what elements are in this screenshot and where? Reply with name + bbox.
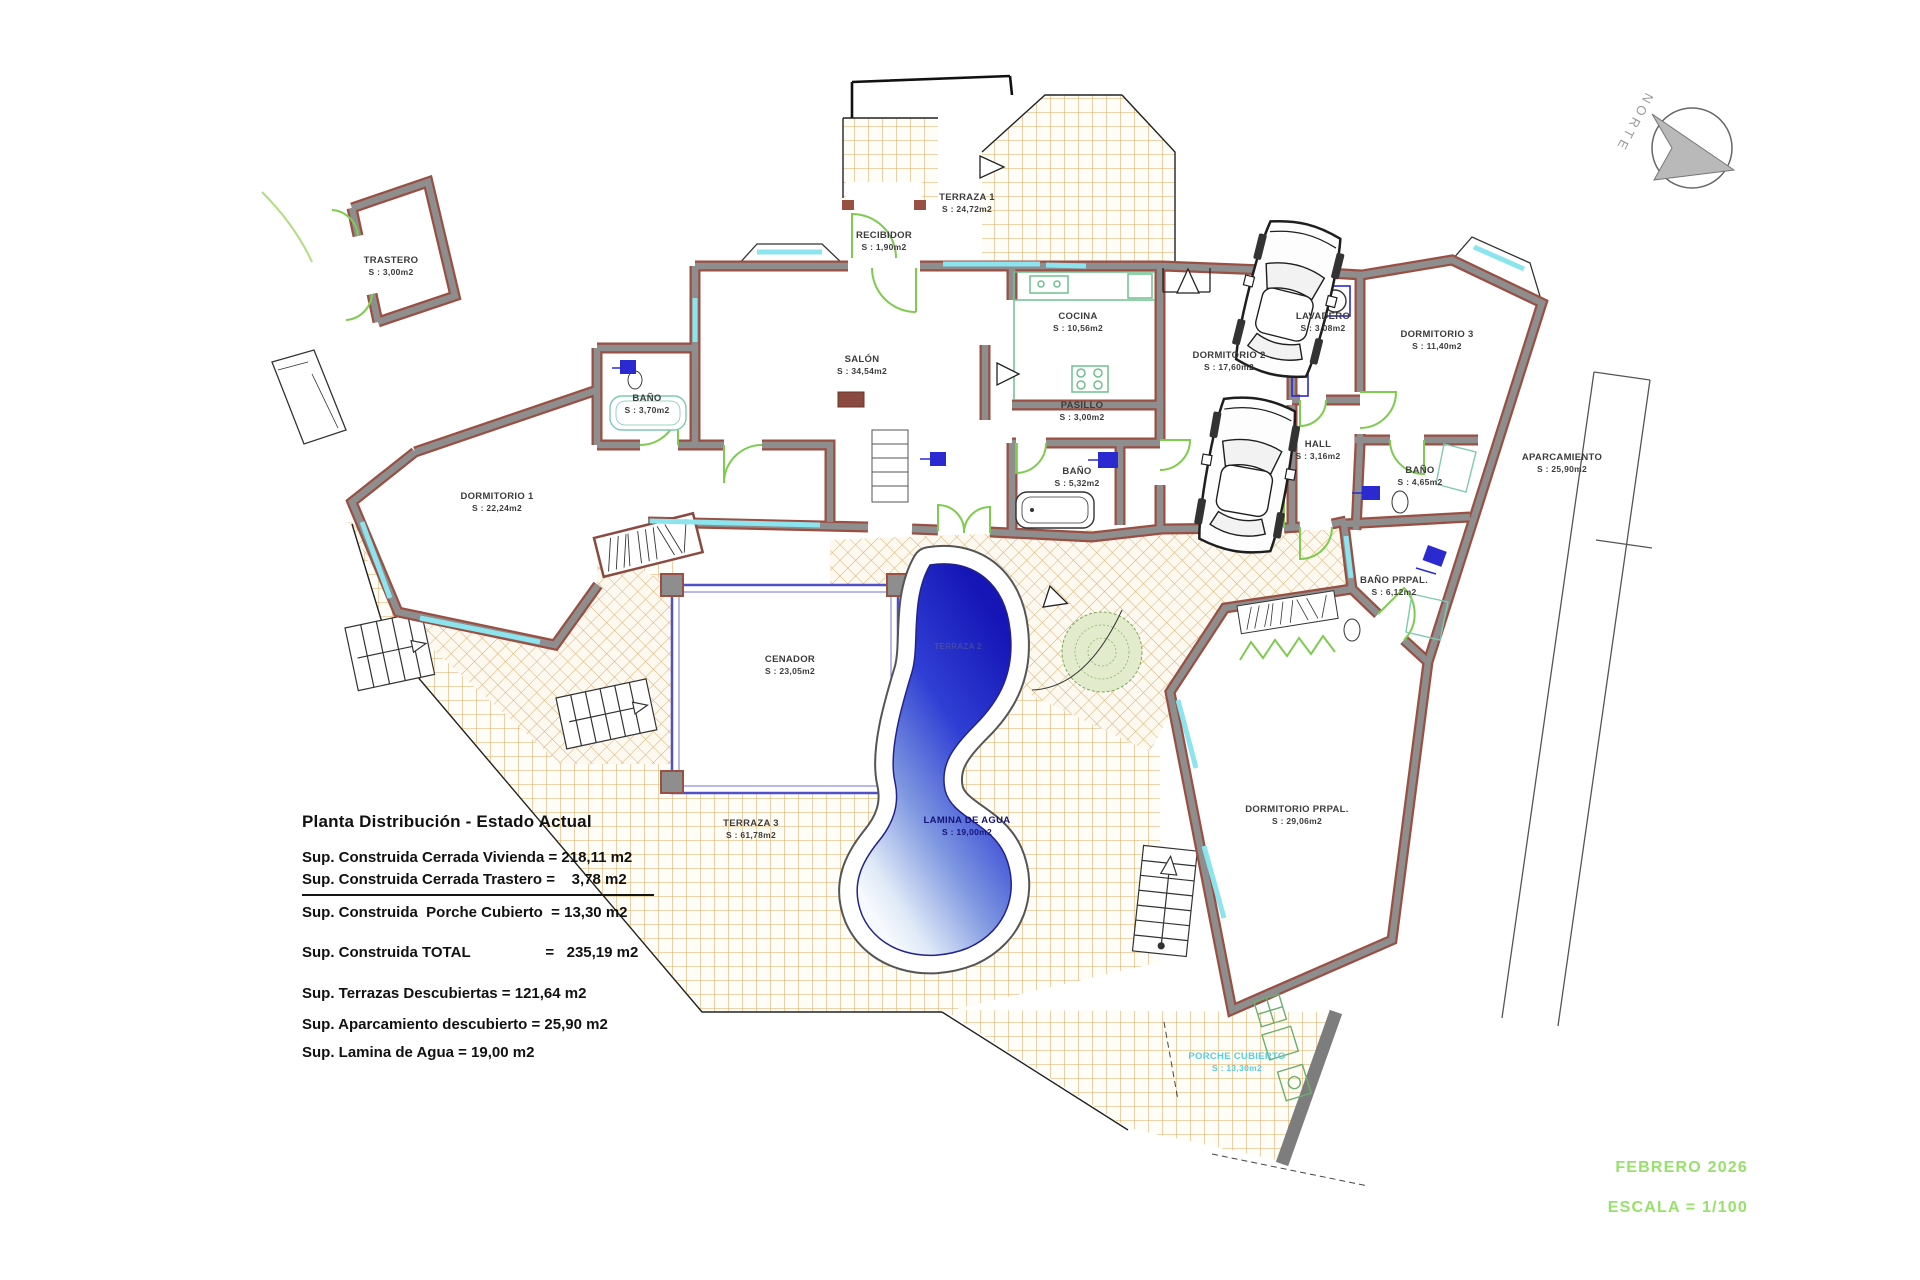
room-name: HALL [1305,439,1332,450]
room-labels-layer: TRASTEROS : 3,00m2TERRAZA 1S : 24,72m2RE… [0,0,1920,1280]
summary-line-terrazas: Sup. Terrazas Descubiertas = 121,64 m2 [302,984,672,1004]
room-label-lavadero: LAVADEROS : 3,08m2 [1296,311,1350,334]
room-area: S : 3,00m2 [1059,412,1104,423]
floor-plan-page: NORTE TRASTEROS : 3,00m2TERRAZA 1S : 24,… [0,0,1920,1280]
room-area: S : 19,00m2 [924,827,1011,838]
room-name: PASILLO [1061,400,1104,411]
summary-line-aparcamiento: Sup. Aparcamiento descubierto = 25,90 m2 [302,1015,672,1035]
room-label-dormitorio-prpal: DORMITORIO PRPAL.S : 29,06m2 [1245,804,1348,827]
room-area: S : 3,00m2 [364,267,419,278]
room-label-bano-prpal: BAÑO PRPAL.S : 6,12m2 [1360,575,1428,598]
summary-line-porche: Sup. Construida Porche Cubierto = 13,30 … [302,903,672,923]
room-name: PORCHE CUBIERTO [1188,1051,1285,1062]
room-label-recibidor: RECIBIDORS : 1,90m2 [856,230,912,253]
room-area: S : 34,54m2 [837,366,887,377]
room-area: S : 13,30m2 [1188,1063,1285,1074]
room-area: S : 4,65m2 [1397,477,1442,488]
room-label-bano-2: BAÑOS : 5,32m2 [1054,466,1099,489]
room-label-bano-3: BAÑOS : 4,65m2 [1397,465,1442,488]
room-area: S : 3,16m2 [1295,451,1340,462]
room-label-lamina-de-agua: LAMINA DE AGUAS : 19,00m2 [924,815,1011,838]
room-name: TRASTERO [364,255,419,266]
room-name: BAÑO [1405,465,1434,476]
room-name: TERRAZA 2 [934,642,981,651]
room-label-dormitorio-1: DORMITORIO 1S : 22,24m2 [460,491,533,514]
room-name: DORMITORIO 1 [460,491,533,502]
room-name: LAVADERO [1296,311,1350,322]
summary-line-vivienda: Sup. Construida Cerrada Vivienda = 218,1… [302,848,672,868]
room-label-dormitorio-2: DORMITORIO 2S : 17,60m2 [1192,350,1265,373]
plan-title: Planta Distribución - Estado Actual [302,812,672,832]
room-name: TERRAZA 3 [723,818,779,829]
summary-block: Planta Distribución - Estado Actual Sup.… [302,812,672,1063]
room-area: S : 23,05m2 [765,666,815,677]
room-area: S : 22,24m2 [460,503,533,514]
room-area: S : 61,78m2 [723,830,779,841]
room-label-cenador: CENADORS : 23,05m2 [765,654,815,677]
room-name: BAÑO [632,393,661,404]
room-area: S : 25,90m2 [1522,464,1602,475]
room-area: S : 3,08m2 [1296,323,1350,334]
room-area: S : 11,40m2 [1400,341,1473,352]
summary-line-trastero: Sup. Construida Cerrada Trastero = 3,78 … [302,870,654,897]
room-area: S : 5,32m2 [1054,478,1099,489]
room-area: S : 29,06m2 [1245,816,1348,827]
room-label-trastero: TRASTEROS : 3,00m2 [364,255,419,278]
room-name: DORMITORIO 3 [1400,329,1473,340]
room-name: RECIBIDOR [856,230,912,241]
room-name: SALÓN [845,354,880,365]
room-label-terraza-3: TERRAZA 3S : 61,78m2 [723,818,779,841]
room-name: LAMINA DE AGUA [924,815,1011,826]
room-name: APARCAMIENTO [1522,452,1602,463]
room-area: S : 10,56m2 [1053,323,1103,334]
room-label-salon: SALÓNS : 34,54m2 [837,354,887,377]
room-label-cocina: COCINAS : 10,56m2 [1053,311,1103,334]
room-name: BAÑO [1062,466,1091,477]
room-label-terraza-2: TERRAZA 2 [934,642,981,652]
room-name: DORMITORIO PRPAL. [1245,804,1348,815]
room-label-hall: HALLS : 3,16m2 [1295,439,1340,462]
room-area: S : 3,70m2 [624,405,669,416]
room-name: DORMITORIO 2 [1192,350,1265,361]
room-label-aparcamiento: APARCAMIENTOS : 25,90m2 [1522,452,1602,475]
room-label-porche-cubierto: PORCHE CUBIERTOS : 13,30m2 [1188,1051,1285,1074]
room-name: COCINA [1058,311,1097,322]
room-name: CENADOR [765,654,815,665]
date-label: FEBRERO 2026 [1615,1160,1748,1176]
room-label-pasillo: PASILLOS : 3,00m2 [1059,400,1104,423]
scale-label: ESCALA = 1/100 [1608,1200,1748,1216]
room-label-terraza-1: TERRAZA 1S : 24,72m2 [939,192,995,215]
summary-line-lamina: Sup. Lamina de Agua = 19,00 m2 [302,1043,672,1063]
room-name: BAÑO PRPAL. [1360,575,1428,586]
room-label-bano-1: BAÑOS : 3,70m2 [624,393,669,416]
summary-line-total: Sup. Construida TOTAL = 235,19 m2 [302,943,672,963]
room-area: S : 6,12m2 [1360,587,1428,598]
room-label-dormitorio-3: DORMITORIO 3S : 11,40m2 [1400,329,1473,352]
room-area: S : 1,90m2 [856,242,912,253]
room-name: TERRAZA 1 [939,192,995,203]
room-area: S : 17,60m2 [1192,362,1265,373]
room-area: S : 24,72m2 [939,204,995,215]
